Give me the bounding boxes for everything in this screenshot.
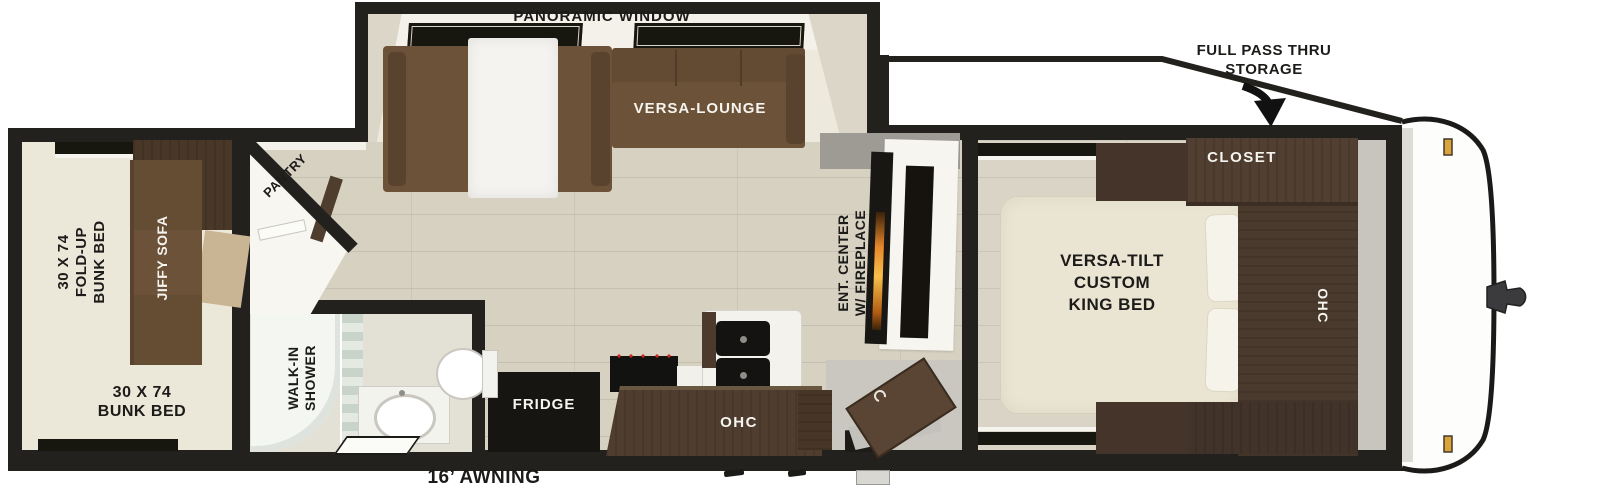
bedroom-window-top: [978, 143, 1106, 156]
sofa-bed-blanket: [468, 38, 558, 198]
panoramic-window-label: PANORAMIC WINDOW: [472, 8, 732, 26]
marker-light-top: [1444, 139, 1452, 155]
ent-center-label: ENT. CENTER W/ FIREPLACE: [835, 188, 867, 338]
front-storage-band: [1358, 140, 1388, 454]
sofa-bed-arm-left: [388, 52, 406, 186]
ent-center-line1: ENT. CENTER: [835, 188, 852, 338]
rv-floorplan: JIFFY SOFA 30 X 74 FOLD-UP BUNK BED 30 X…: [0, 0, 1600, 495]
walk-in-line2: SHOWER: [302, 313, 319, 443]
wall-bedroom-front: [1386, 125, 1403, 466]
walk-in-line1: WALK-IN: [285, 313, 302, 443]
ent-center-line2: W/ FIREPLACE: [852, 188, 869, 338]
bedroom-window-top-sill: [978, 156, 1106, 160]
bathroom-faucet: [399, 390, 405, 396]
versa-lounge-arm-right: [786, 54, 805, 144]
versa-lounge-label: VERSA-LOUNGE: [600, 100, 800, 118]
stove-burners: [614, 353, 674, 359]
nightstand-bottom: [1096, 402, 1188, 454]
bunk-bed-line2: BUNK BED: [72, 402, 212, 421]
walk-in-shower-label: WALK-IN SHOWER: [285, 313, 317, 443]
king-bed-line2: CUSTOM: [1032, 272, 1192, 294]
bedroom-window-bottom-sill: [978, 427, 1110, 431]
king-bed-label: VERSA-TILT CUSTOM KING BED: [1032, 250, 1192, 316]
versa-lounge-seam2: [740, 50, 742, 86]
marker-light-bottom: [1444, 436, 1452, 452]
fold-up-line1: 30 X 74: [55, 182, 73, 342]
versa-lounge-seam1: [675, 50, 677, 86]
jiffy-sofa-label: JIFFY SOFA: [154, 193, 172, 323]
awning-bracket-right: [788, 469, 807, 477]
awning-label: 16’ AWNING: [384, 467, 584, 490]
sink-faucet: [740, 336, 747, 343]
front-cap-body: [1402, 119, 1494, 471]
sofa-bed-arm-right: [591, 52, 610, 186]
king-bed-line1: VERSA-TILT: [1032, 250, 1192, 272]
toilet-tank: [482, 350, 498, 398]
panoramic-window-right: [633, 23, 804, 49]
bathroom-sink: [374, 394, 436, 442]
bath-mat: [333, 436, 420, 455]
full-pass-line1: FULL PASS THRU: [1154, 42, 1374, 61]
fold-up-line2: FOLD-UP: [73, 182, 91, 342]
front-cap-outline: [1402, 119, 1494, 471]
front-cap-shade: [1402, 128, 1413, 462]
fold-up-bunk-label: 30 X 74 FOLD-UP BUNK BED: [55, 182, 113, 342]
sink-faucet2: [740, 372, 747, 379]
full-pass-line2: STORAGE: [1154, 61, 1374, 80]
bedroom-window-bottom: [978, 432, 1110, 445]
kitchen-ohc-label: OHC: [699, 414, 779, 432]
nightstand-top: [1096, 143, 1188, 201]
bedroom-ohc-label: OHC: [1313, 266, 1331, 346]
wall-slideout-left: [355, 2, 368, 140]
closet-label: CLOSET: [1182, 149, 1302, 167]
bedroom-foot-cabinet: [1186, 402, 1358, 454]
wall-living-bedroom-divider: [962, 133, 978, 455]
awning-bracket-left: [724, 469, 745, 477]
sink-corner-cabinet: [702, 312, 716, 368]
entry-side-cabinet: [798, 390, 832, 450]
entry-exterior-step: [856, 470, 890, 485]
tv-panel: [900, 166, 934, 339]
wall-rear-left: [8, 128, 22, 468]
fold-up-line3: BUNK BED: [91, 182, 109, 342]
full-pass-thru-label: FULL PASS THRU STORAGE: [1154, 42, 1374, 80]
versa-lounge: [612, 48, 805, 148]
fridge-label: FRIDGE: [494, 396, 594, 414]
bunk-bed-line1: 30 X 74: [72, 383, 212, 402]
hitch-icon: [1487, 281, 1526, 313]
king-bed-line3: KING BED: [1032, 294, 1192, 316]
wall-storage-left-edge: [879, 55, 889, 131]
bunk-bed-label: 30 X 74 BUNK BED: [72, 383, 212, 421]
bunk-window-bottom: [38, 439, 178, 451]
